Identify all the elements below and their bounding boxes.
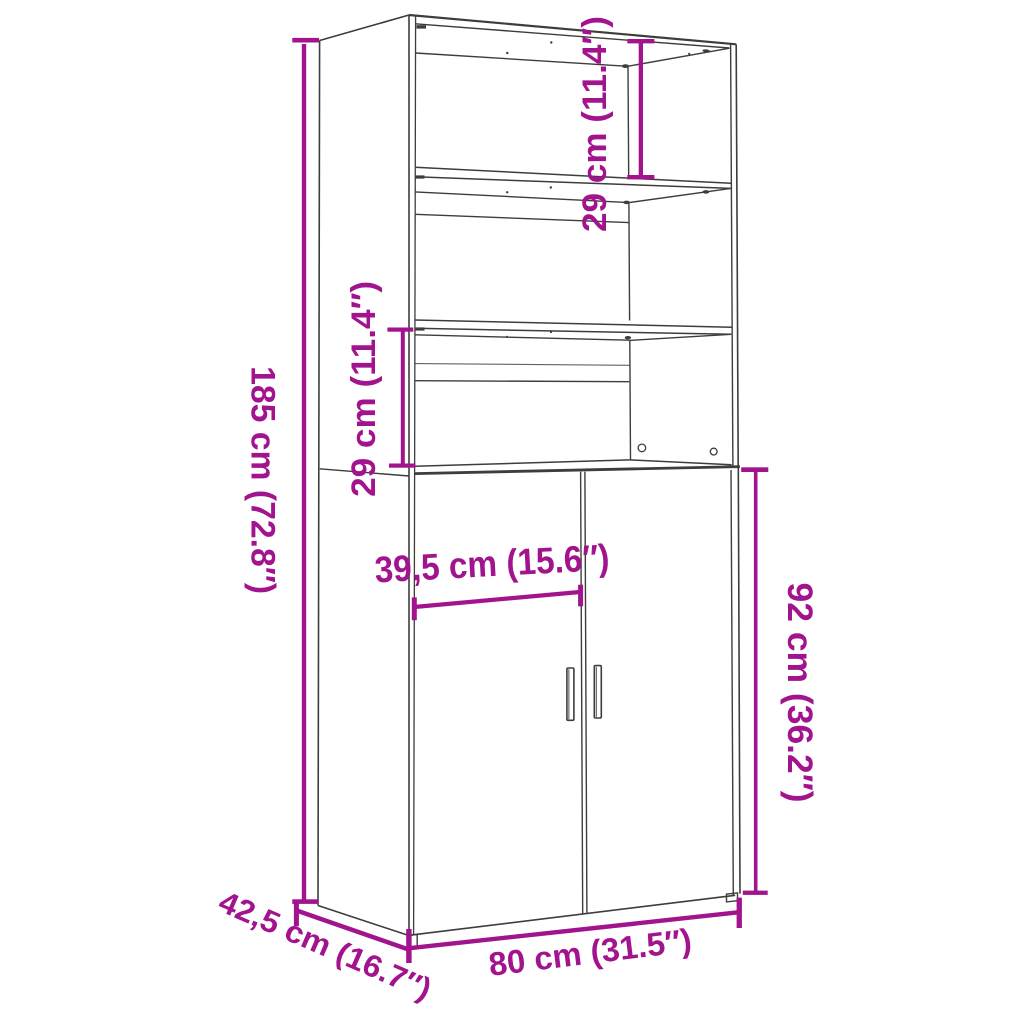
svg-text:92 cm (36.2″): 92 cm (36.2″) (780, 583, 819, 803)
svg-text:29 cm (11.4″): 29 cm (11.4″) (576, 16, 614, 232)
svg-text:185 cm (72.8″): 185 cm (72.8″) (244, 366, 282, 594)
svg-text:29 cm (11.4″): 29 cm (11.4″) (345, 281, 383, 497)
